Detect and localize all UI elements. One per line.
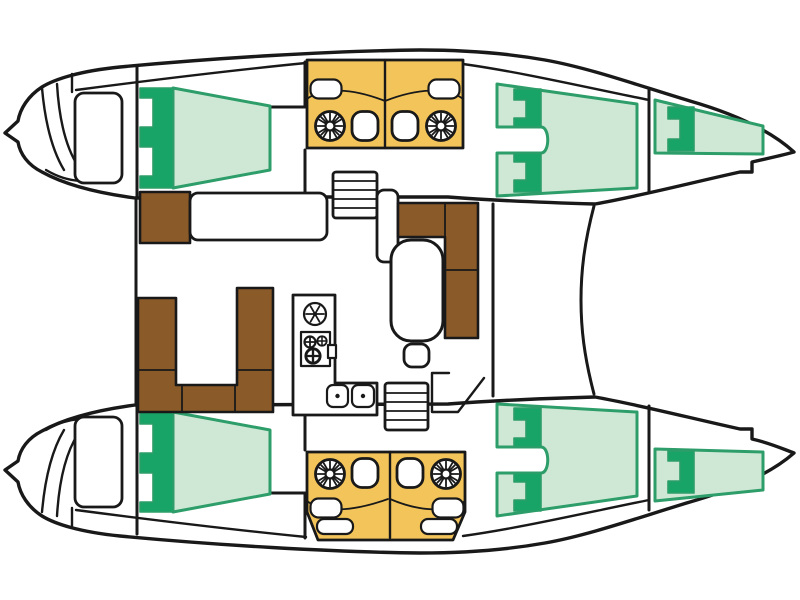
head-seat [421,519,457,534]
sink-icon [429,80,460,99]
galley [293,295,377,415]
port-hull [5,50,794,204]
toilet-icon [397,459,423,488]
starboard-transom-seat [75,417,122,507]
saloon-stool [404,344,429,367]
helm-seat [140,192,190,243]
starboard-companionway-stairs [385,383,428,430]
port-head [307,60,463,148]
layout-drawing [0,0,800,600]
burner-icon [306,349,320,363]
sink-icon [311,499,342,518]
vent-fan-icon [304,303,326,325]
burner-icon [317,336,326,345]
starboard-head [307,452,465,540]
toilet-icon [352,112,378,141]
cockpit-settee [138,288,273,412]
shower-icon [432,460,461,489]
bridgedeck [136,172,594,430]
toilet-icon [392,112,418,141]
port-transom-seat [75,93,122,183]
forward-crossbeam [581,206,594,394]
catamaran-floor-plan [0,0,800,600]
cockpit-bench [190,193,327,240]
toilet-icon [352,459,378,488]
starboard-bow-berth [655,449,763,501]
starboard-aft-cabin-berth [140,412,270,512]
shower-icon [427,112,456,141]
port-companionway-stairs [333,172,377,218]
port-aft-cabin-berth [140,88,270,188]
head-seat [317,519,353,534]
burner-icon [305,337,316,348]
sink-icon [311,80,342,99]
shower-icon [316,460,345,489]
shower-icon [316,112,345,141]
saloon-table [391,240,443,341]
sink-icon [433,499,464,518]
